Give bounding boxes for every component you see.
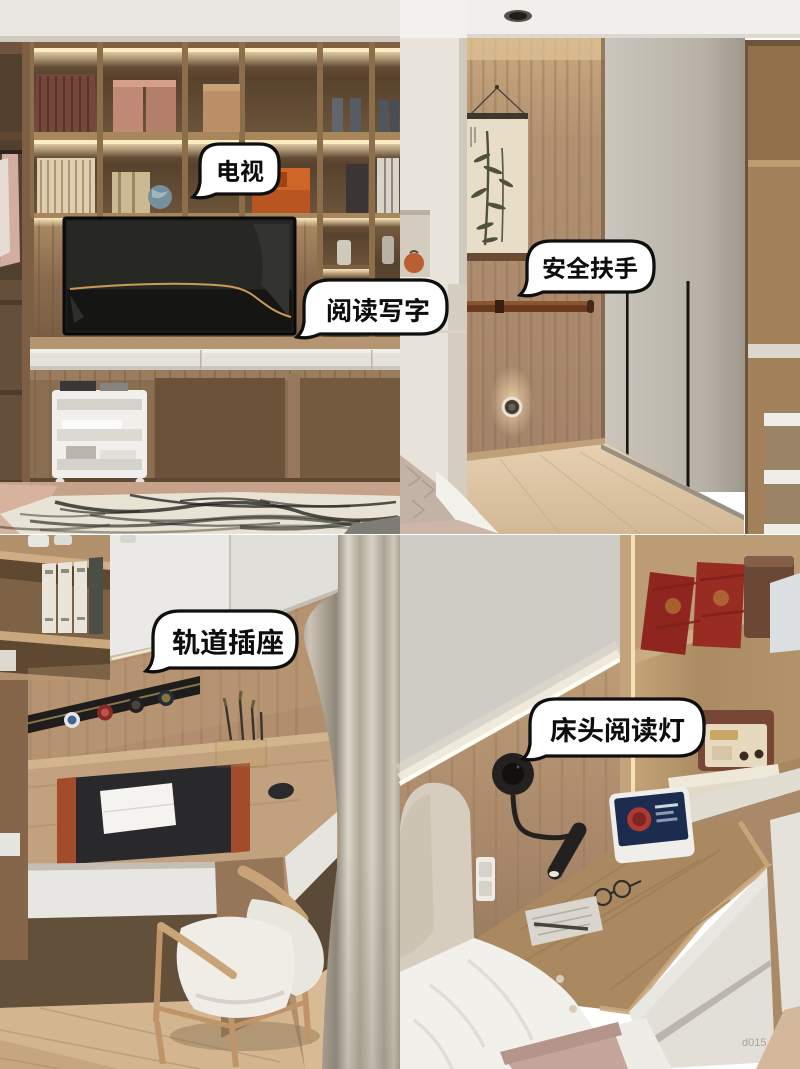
svg-text:d015: d015 [742,1037,766,1049]
